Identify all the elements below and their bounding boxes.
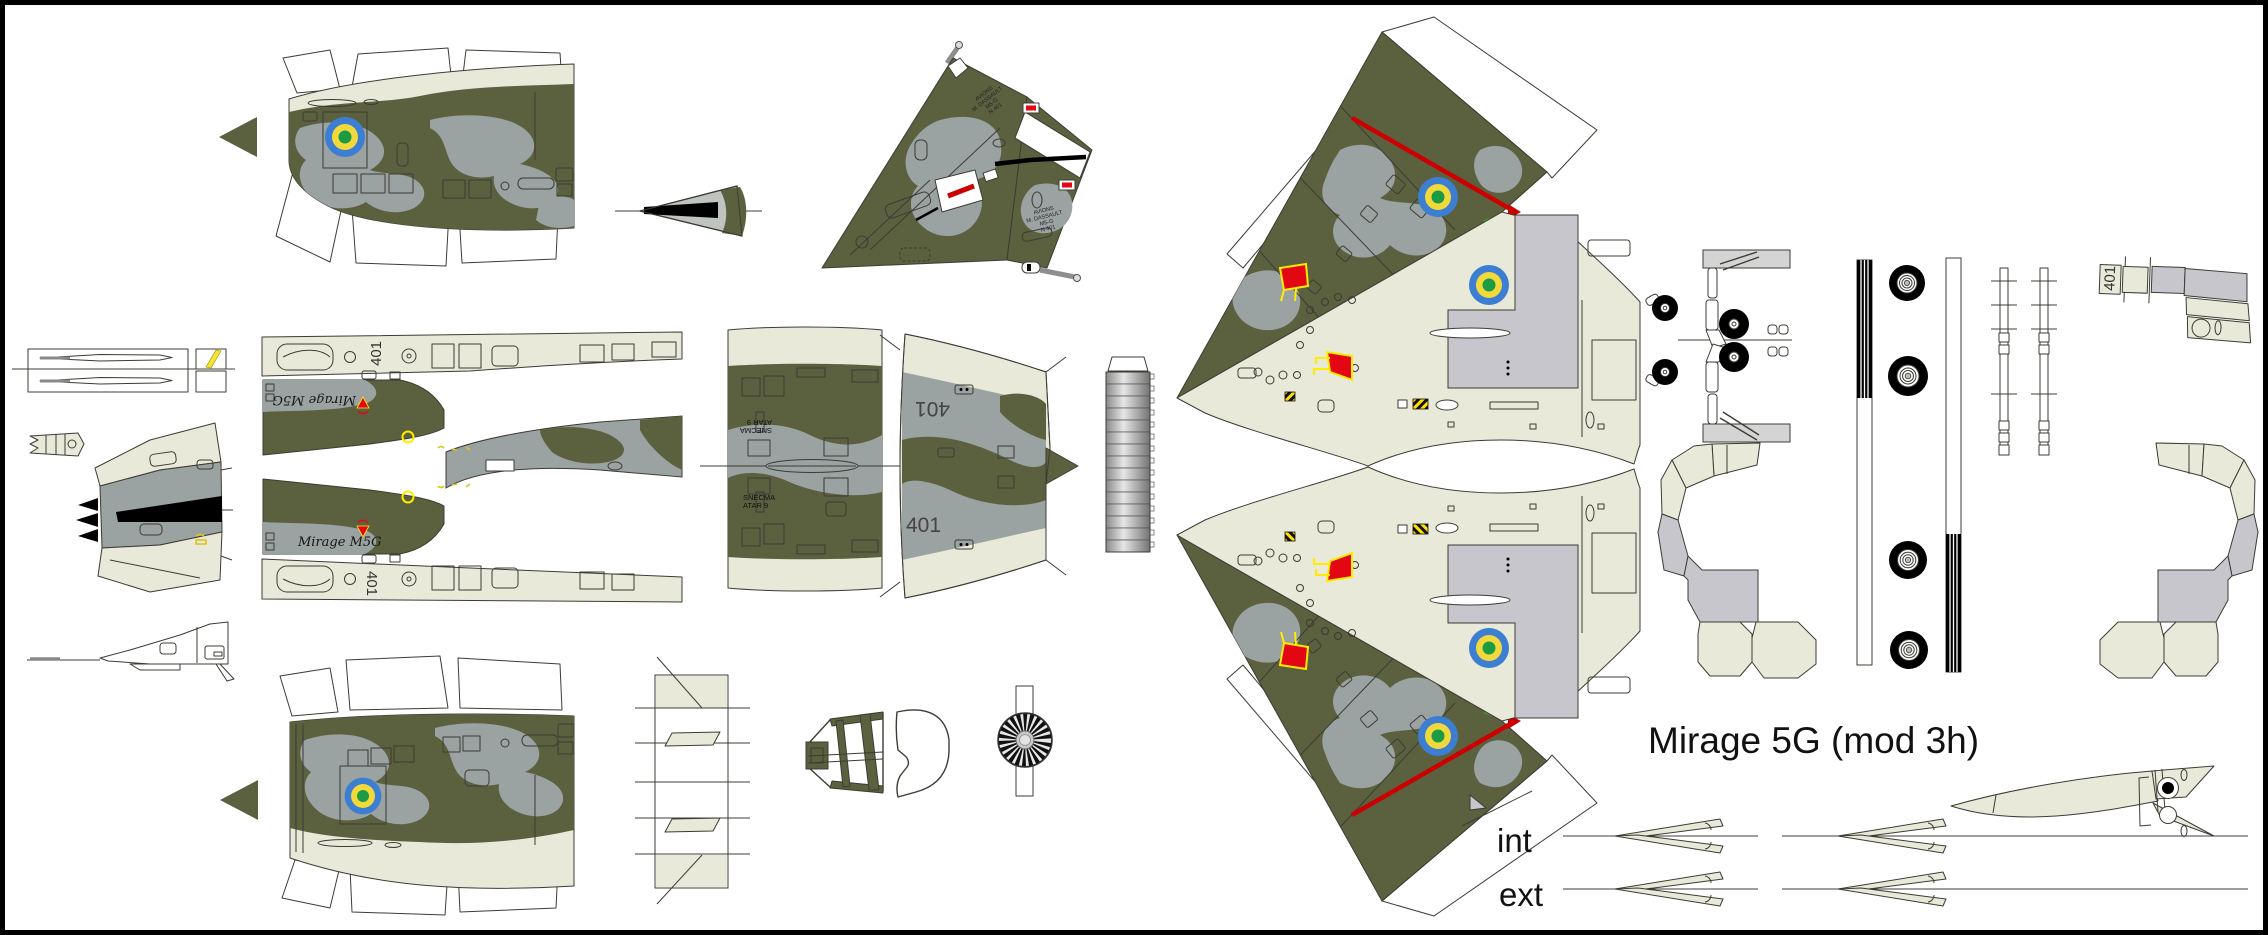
script-mirage-top: Mirage M5G — [272, 392, 357, 407]
main-wheel — [1890, 631, 1928, 669]
hazard-square-large — [1413, 399, 1428, 409]
main-wheel — [1889, 265, 1925, 301]
code-401-strip-bottom: 401 — [363, 571, 380, 596]
page-title: Mirage 5G (mod 3h) — [1648, 720, 1979, 761]
exhaust-nozzle-strip — [1106, 357, 1154, 552]
fuselage-nose-side-top — [276, 48, 574, 266]
main-wheel — [1888, 356, 1928, 396]
striped-wedge — [30, 433, 84, 456]
mid-fuselage-a: SNECMAATAR 9 SNECMAATAR 9 — [700, 327, 900, 591]
script-mirage-bottom: Mirage M5G — [297, 535, 382, 550]
papercraft-sheet: AVIONSM. DASSAULT M5-GN 401 AVIONSM. DAS… — [0, 0, 2268, 935]
hazard-square-small — [1285, 392, 1295, 401]
fuselage-nose-side-bottom — [280, 656, 574, 915]
template-canvas: AVIONSM. DASSAULT M5-GN 401 AVIONSM. DAS… — [0, 0, 2268, 935]
label-ext: ext — [1499, 876, 1543, 913]
main-wheel — [1889, 541, 1927, 579]
roundel-wing-underside — [1469, 265, 1509, 305]
roundel-fuselage-top — [325, 117, 365, 157]
code-401-door: 401 — [2101, 266, 2119, 292]
label-int: int — [1497, 822, 1532, 859]
roundel-wing-camo — [1418, 177, 1458, 217]
code-401-strip-top: 401 — [368, 341, 385, 366]
roundel-fuselage-bottom — [345, 778, 382, 815]
code-401-rear-bottom: 401 — [906, 514, 941, 537]
code-401-rear-top: 401 — [915, 397, 950, 420]
